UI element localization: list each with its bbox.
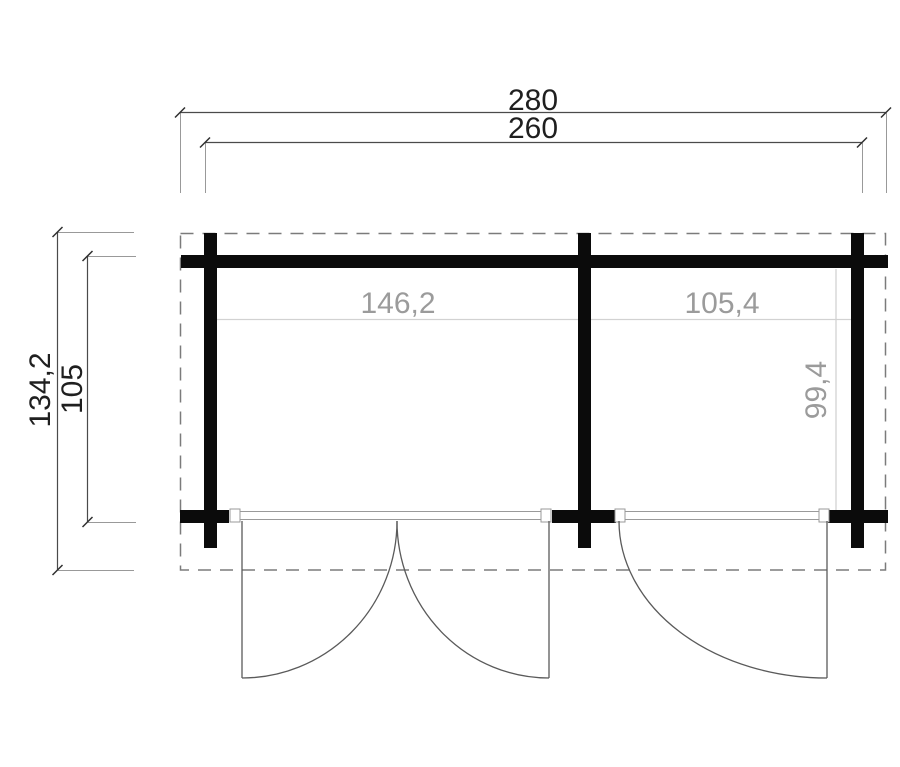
wall-left-log	[204, 233, 217, 548]
dim-label-overall-depth: 134,2	[26, 320, 56, 460]
double-door-left	[242, 521, 549, 678]
room-label-right-depth: 99,4	[802, 320, 832, 460]
door-swing-arc	[242, 521, 397, 678]
door-sills	[230, 509, 829, 522]
wall-right-log	[851, 233, 864, 548]
room-label-right-width: 105,4	[652, 289, 792, 319]
dimension-ticks	[53, 108, 892, 576]
sill-post	[819, 509, 829, 522]
floor-plan-drawing	[0, 0, 900, 767]
door-swing-arc	[397, 521, 549, 678]
floor-plan-canvas: 280 260 134,2 105 146,2 105,4 99,4	[0, 0, 900, 767]
wall-bottom-middle-log	[552, 510, 616, 523]
single-door-right	[619, 521, 827, 678]
wall-top-log	[181, 255, 888, 268]
log-walls	[180, 233, 888, 548]
double-door-sill	[232, 512, 549, 520]
door-swing-arc	[619, 521, 827, 678]
sill-post	[230, 509, 240, 522]
wall-bottom-left-log	[180, 510, 229, 523]
sill-post	[541, 509, 551, 522]
wall-partition-log	[578, 233, 591, 548]
dimension-lines	[53, 108, 892, 576]
single-door-sill	[619, 512, 827, 520]
dim-label-shell-depth: 105	[58, 319, 88, 459]
room-label-left-width: 146,2	[328, 289, 468, 319]
dim-label-shell-width: 260	[463, 114, 603, 144]
wall-bottom-right-log	[828, 510, 888, 523]
sill-post	[615, 509, 625, 522]
